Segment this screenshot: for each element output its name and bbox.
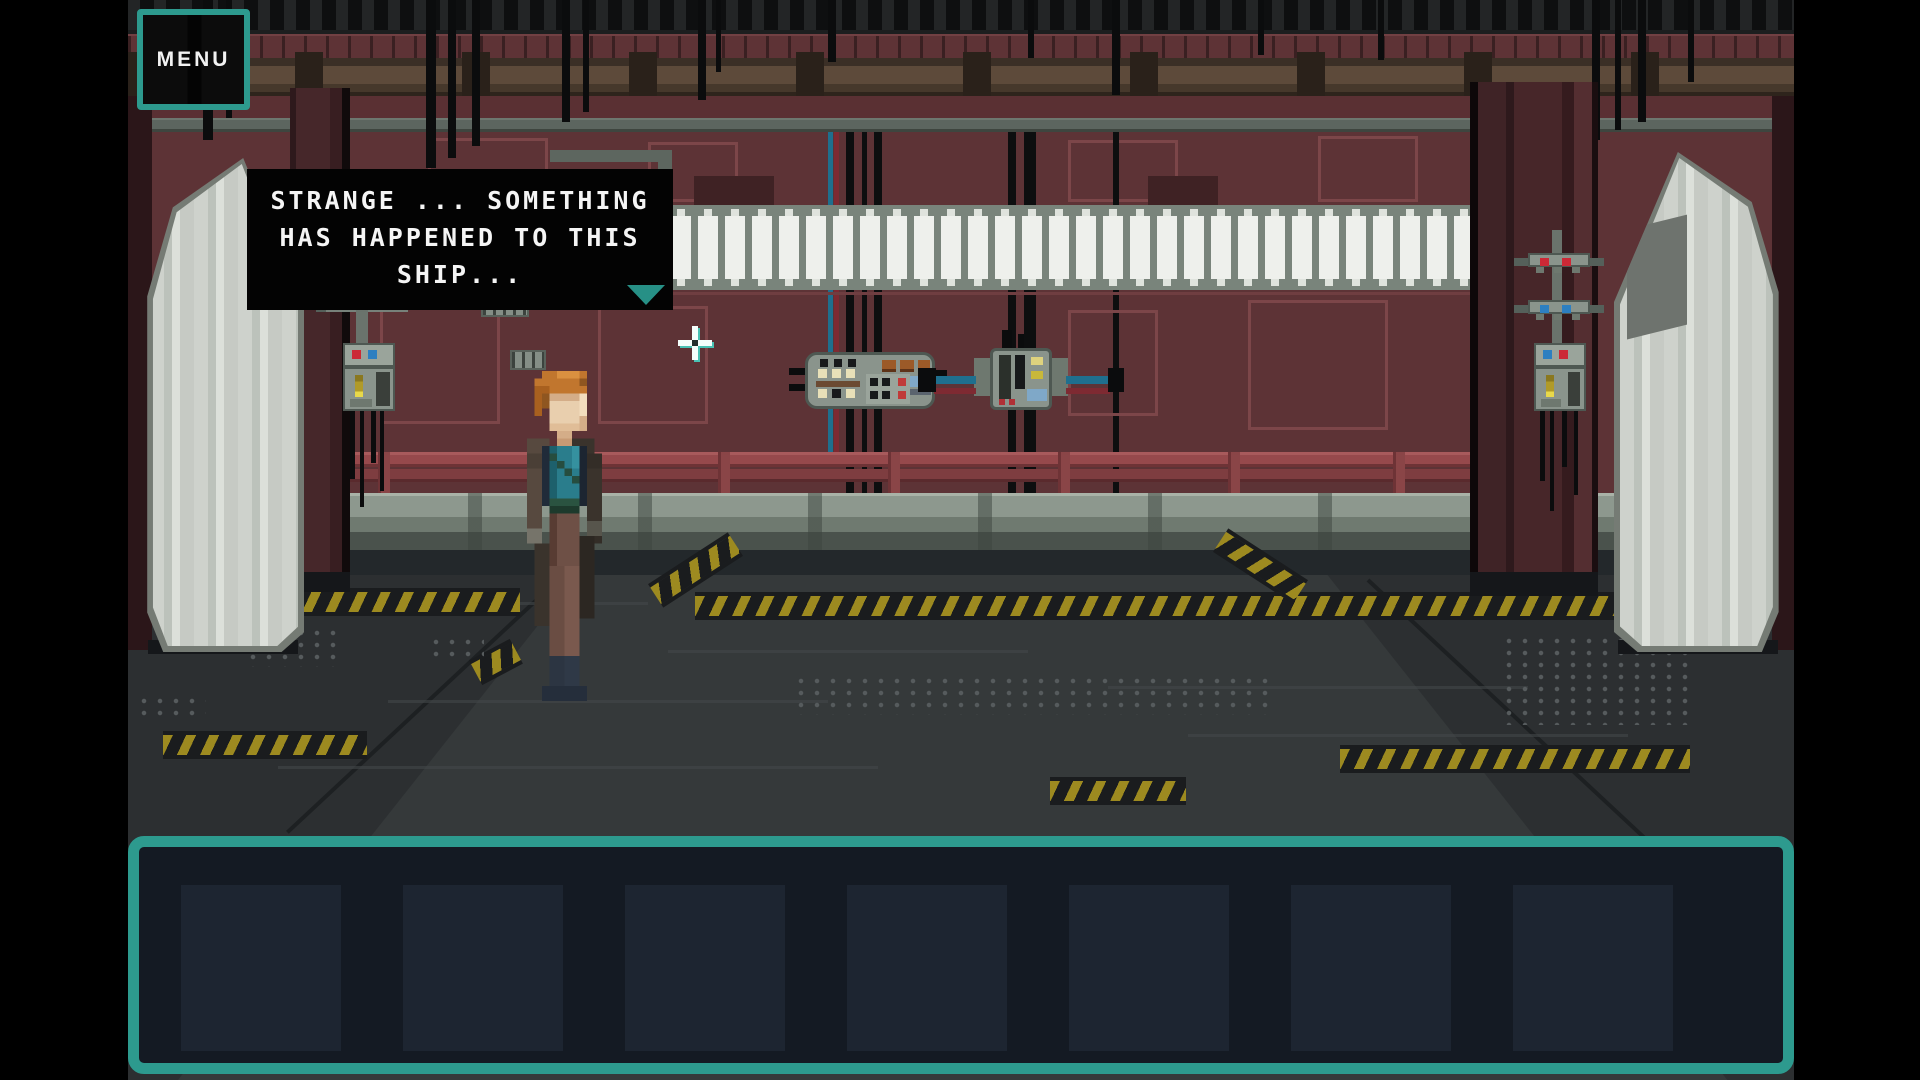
bracket-arm	[1514, 305, 1528, 313]
inventory-slot[interactable]	[403, 885, 563, 1051]
bracket-nub	[1572, 267, 1580, 273]
dangling-wire	[360, 411, 364, 507]
panel-button-cream	[846, 369, 855, 378]
crosshair-cursor-icon	[678, 326, 716, 364]
hanging-rod	[1615, 0, 1621, 130]
blue-indicator-light	[1540, 305, 1549, 313]
wall-panel-outline	[1318, 136, 1418, 202]
right-wall-device-top[interactable]	[1534, 343, 1586, 367]
panel-brown-bar	[816, 381, 860, 387]
panel-button-cream	[832, 369, 841, 378]
dangling-wire	[1574, 411, 1578, 495]
floor-streak	[278, 766, 878, 769]
panel-button-yellow	[1031, 357, 1043, 365]
panel-dot-red	[1009, 399, 1015, 405]
hazard-stripe	[1340, 745, 1690, 773]
dialogue-line: HAS HAPPENED TO THIS	[247, 219, 673, 256]
wall-vent-small[interactable]	[510, 350, 546, 370]
dangling-wire	[380, 411, 384, 491]
dialogue-line: STRANGE ... SOMETHING	[247, 182, 673, 219]
menu-button[interactable]: MENU	[137, 9, 250, 110]
panel-cable	[789, 368, 805, 375]
wall-panel-outline	[1248, 300, 1388, 430]
panel-button-orange	[882, 360, 896, 372]
bracket-nub	[1536, 314, 1544, 320]
floor-dots	[793, 675, 1269, 715]
blue-pipe	[828, 132, 833, 462]
wall-panel-outline	[598, 306, 708, 424]
panel-cable-top	[1018, 334, 1024, 348]
cable-bundle	[918, 368, 936, 392]
black-pipe	[1008, 132, 1016, 504]
hazard-stripe	[695, 592, 1617, 620]
panel-subpanel	[866, 374, 910, 404]
panel-blue-screen	[1027, 389, 1047, 401]
panel-button-black	[848, 359, 856, 367]
panel-button-black	[870, 378, 878, 386]
game-screen: { "ui": { "menu_button": { "label": "MEN…	[0, 0, 1920, 1080]
inventory-slot[interactable]	[181, 885, 341, 1051]
device-detail	[1541, 399, 1561, 407]
dangling-wire	[1562, 411, 1567, 467]
dangling-wire	[1550, 411, 1554, 511]
inventory-bar	[128, 836, 1794, 1074]
red-rail-pipe	[350, 469, 1470, 482]
bracket-nub	[1554, 267, 1562, 273]
inventory-slot[interactable]	[847, 885, 1007, 1051]
hanging-rod	[562, 0, 570, 122]
control-panel-left[interactable]	[805, 352, 935, 409]
left-wall-device-body[interactable]	[343, 367, 395, 411]
red-cable	[1066, 388, 1110, 394]
hanging-rod	[1028, 0, 1034, 58]
blue-indicator-light	[1562, 305, 1571, 313]
red-indicator-light	[1562, 258, 1571, 266]
panel-button-black	[820, 359, 828, 367]
cable-bundle	[1108, 368, 1124, 392]
device-yellow-slot	[355, 375, 363, 397]
panel-button-black	[882, 391, 890, 399]
dialogue-continue-icon	[627, 285, 665, 305]
right-light-bracket-red[interactable]	[1528, 253, 1590, 267]
hanging-rod	[1112, 0, 1120, 95]
hanging-rod	[472, 0, 480, 146]
bracket-nub	[1554, 314, 1562, 320]
panel-button-cream	[846, 389, 855, 398]
device-pole	[1552, 230, 1562, 345]
panel-cable	[789, 384, 805, 391]
panel-button-orange	[900, 360, 914, 372]
inventory-slot[interactable]	[1069, 885, 1229, 1051]
panel-dark-slot	[999, 355, 1011, 399]
red-indicator-light	[352, 350, 361, 359]
dialogue-box[interactable]: STRANGE ... SOMETHING HAS HAPPENED TO TH…	[247, 169, 673, 310]
blue-cable	[934, 376, 976, 384]
panel-button-cream	[818, 369, 827, 378]
red-pipe	[834, 132, 839, 460]
hanging-rod	[1688, 0, 1694, 82]
right-door-face	[1620, 158, 1776, 646]
hanging-rod	[828, 0, 836, 62]
panel-bracket-left	[974, 358, 990, 396]
panel-button-black	[882, 378, 890, 386]
bracket-arm	[1590, 258, 1604, 266]
dangling-wire	[1540, 411, 1545, 481]
left-wall-device-top[interactable]	[343, 343, 395, 367]
dangling-wire	[350, 411, 355, 479]
right-pillar-base	[1470, 572, 1598, 596]
red-indicator-light	[1540, 258, 1549, 266]
inventory-slot[interactable]	[1513, 885, 1673, 1051]
dialogue-line: SHIP...	[247, 256, 673, 293]
panel-button-black	[870, 391, 878, 399]
hazard-stripe	[1050, 777, 1186, 805]
wall-panel-outline	[1068, 310, 1158, 416]
right-door-shade	[1627, 214, 1687, 339]
ceiling-grating	[128, 0, 1794, 34]
blue-indicator-light	[1543, 350, 1552, 359]
floor-dots	[428, 636, 484, 662]
hanging-rod	[1378, 0, 1384, 60]
device-dark-column	[1568, 372, 1580, 406]
bracket-nub	[1572, 314, 1580, 320]
hanging-rod	[426, 0, 436, 168]
panel-dark-slot	[1015, 355, 1025, 389]
wall-inset	[1148, 176, 1218, 205]
right-door[interactable]	[1614, 152, 1782, 652]
hanging-rod	[1258, 0, 1264, 55]
floor-streak	[668, 650, 1028, 653]
hanging-rod	[1638, 0, 1646, 122]
grey-conduit	[550, 150, 670, 162]
panel-button-yellow	[1031, 371, 1043, 379]
device-dark-column	[376, 372, 390, 406]
panel-dot-red	[999, 399, 1005, 405]
panel-button-black	[832, 389, 841, 398]
panel-button-cream	[818, 389, 827, 398]
inventory-slot[interactable]	[1291, 885, 1451, 1051]
panel-button-black	[834, 359, 842, 367]
blue-cable	[1066, 376, 1110, 384]
hanging-rod	[698, 0, 706, 100]
floor-dots	[136, 695, 206, 717]
bracket-nub	[1536, 267, 1544, 273]
dangling-wire	[371, 411, 376, 463]
hanging-rod	[583, 0, 589, 112]
bracket-arm	[1590, 305, 1604, 313]
control-panel-right[interactable]	[990, 348, 1052, 410]
hazard-stripe	[163, 731, 367, 759]
red-rail-pipe	[350, 452, 1470, 467]
bracket-arm	[1514, 258, 1528, 266]
device-detail	[350, 399, 372, 407]
wall-inset	[694, 176, 774, 205]
panel-cable-top	[1002, 330, 1012, 348]
floor-streak	[1188, 734, 1628, 737]
floor-streak	[388, 700, 828, 703]
right-light-bracket-blue[interactable]	[1528, 300, 1590, 314]
red-cable	[934, 388, 976, 394]
panel-button-red	[898, 378, 906, 386]
hanging-rod	[716, 0, 721, 72]
blue-indicator-light	[368, 350, 377, 359]
device-yellow-slot	[1546, 375, 1554, 397]
panel-button-red	[898, 391, 906, 399]
player-character	[519, 371, 602, 701]
hanging-rod	[448, 0, 456, 158]
red-indicator-light	[1559, 350, 1568, 359]
black-pipe	[1024, 132, 1036, 502]
right-pillar	[1470, 82, 1598, 572]
inventory-slot[interactable]	[625, 885, 785, 1051]
right-wall-device-body[interactable]	[1534, 367, 1586, 411]
